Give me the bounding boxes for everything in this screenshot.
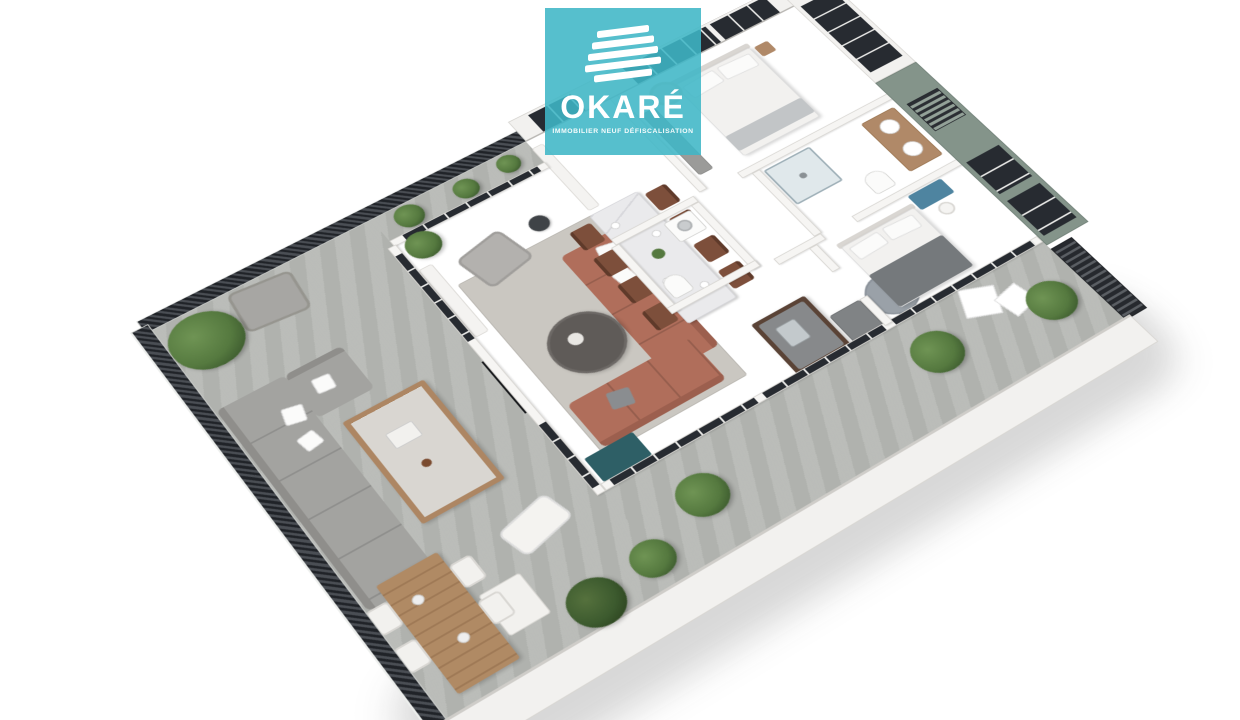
floorplan-render: OKARÉ IMMOBILIER NEUF DÉFISCALISATION <box>0 0 1240 720</box>
logo-tagline: IMMOBILIER NEUF DÉFISCALISATION <box>552 128 693 135</box>
logo-wordmark: OKARÉ <box>560 91 686 123</box>
okare-logo: OKARÉ IMMOBILIER NEUF DÉFISCALISATION <box>545 8 701 155</box>
stacked-building-icon <box>585 19 661 83</box>
